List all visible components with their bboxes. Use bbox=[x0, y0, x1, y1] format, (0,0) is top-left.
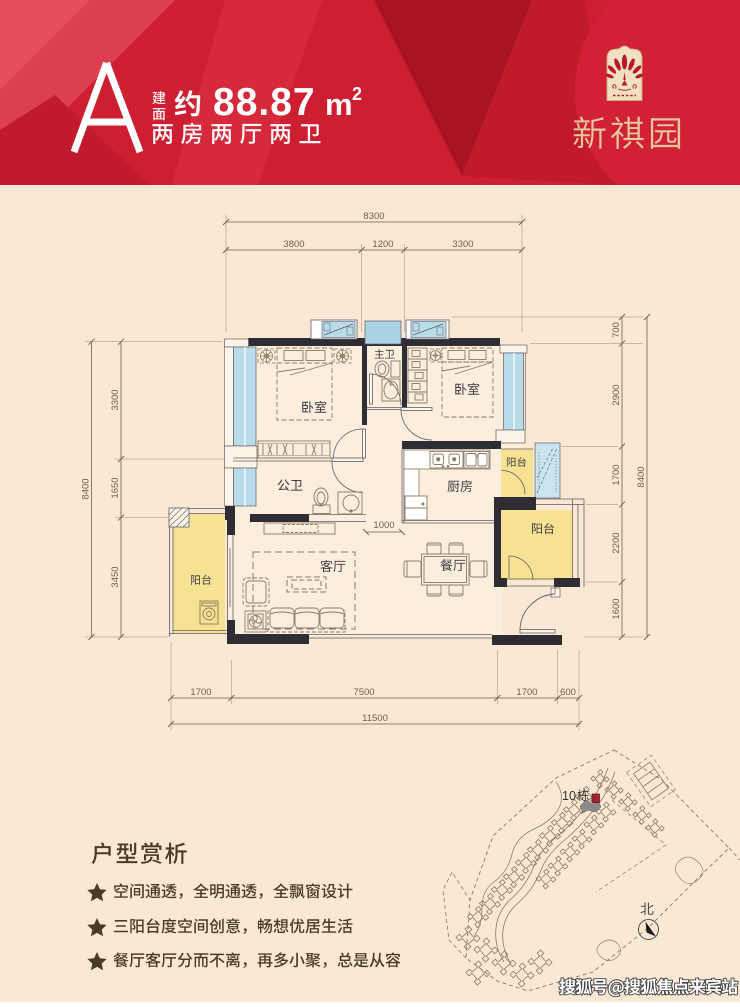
svg-text:1700: 1700 bbox=[190, 687, 211, 698]
svg-text:8400: 8400 bbox=[636, 466, 647, 487]
svg-text:700: 700 bbox=[611, 322, 622, 338]
svg-text:3450: 3450 bbox=[110, 566, 121, 587]
svg-text:1700: 1700 bbox=[516, 687, 537, 698]
svg-text:2200: 2200 bbox=[611, 532, 622, 553]
svg-text:1650: 1650 bbox=[110, 477, 121, 498]
svg-text:3300: 3300 bbox=[452, 239, 473, 250]
svg-text:88.87: 88.87 bbox=[213, 81, 316, 124]
svg-text:11500: 11500 bbox=[362, 713, 388, 724]
svg-text:600: 600 bbox=[560, 687, 576, 698]
svg-text:1000: 1000 bbox=[373, 520, 394, 531]
svg-text:3800: 3800 bbox=[283, 239, 304, 250]
svg-text:8300: 8300 bbox=[363, 211, 384, 222]
svg-text:1600: 1600 bbox=[611, 598, 622, 619]
svg-text:8400: 8400 bbox=[81, 478, 92, 499]
svg-text:1200: 1200 bbox=[372, 239, 393, 250]
svg-text:10: 10 bbox=[562, 789, 576, 803]
svg-text:1700: 1700 bbox=[611, 464, 622, 485]
svg-text:2: 2 bbox=[352, 84, 362, 104]
svg-text:3300: 3300 bbox=[110, 389, 121, 410]
svg-text:2900: 2900 bbox=[611, 384, 622, 405]
svg-text:m: m bbox=[325, 87, 353, 122]
svg-text:7500: 7500 bbox=[353, 687, 374, 698]
